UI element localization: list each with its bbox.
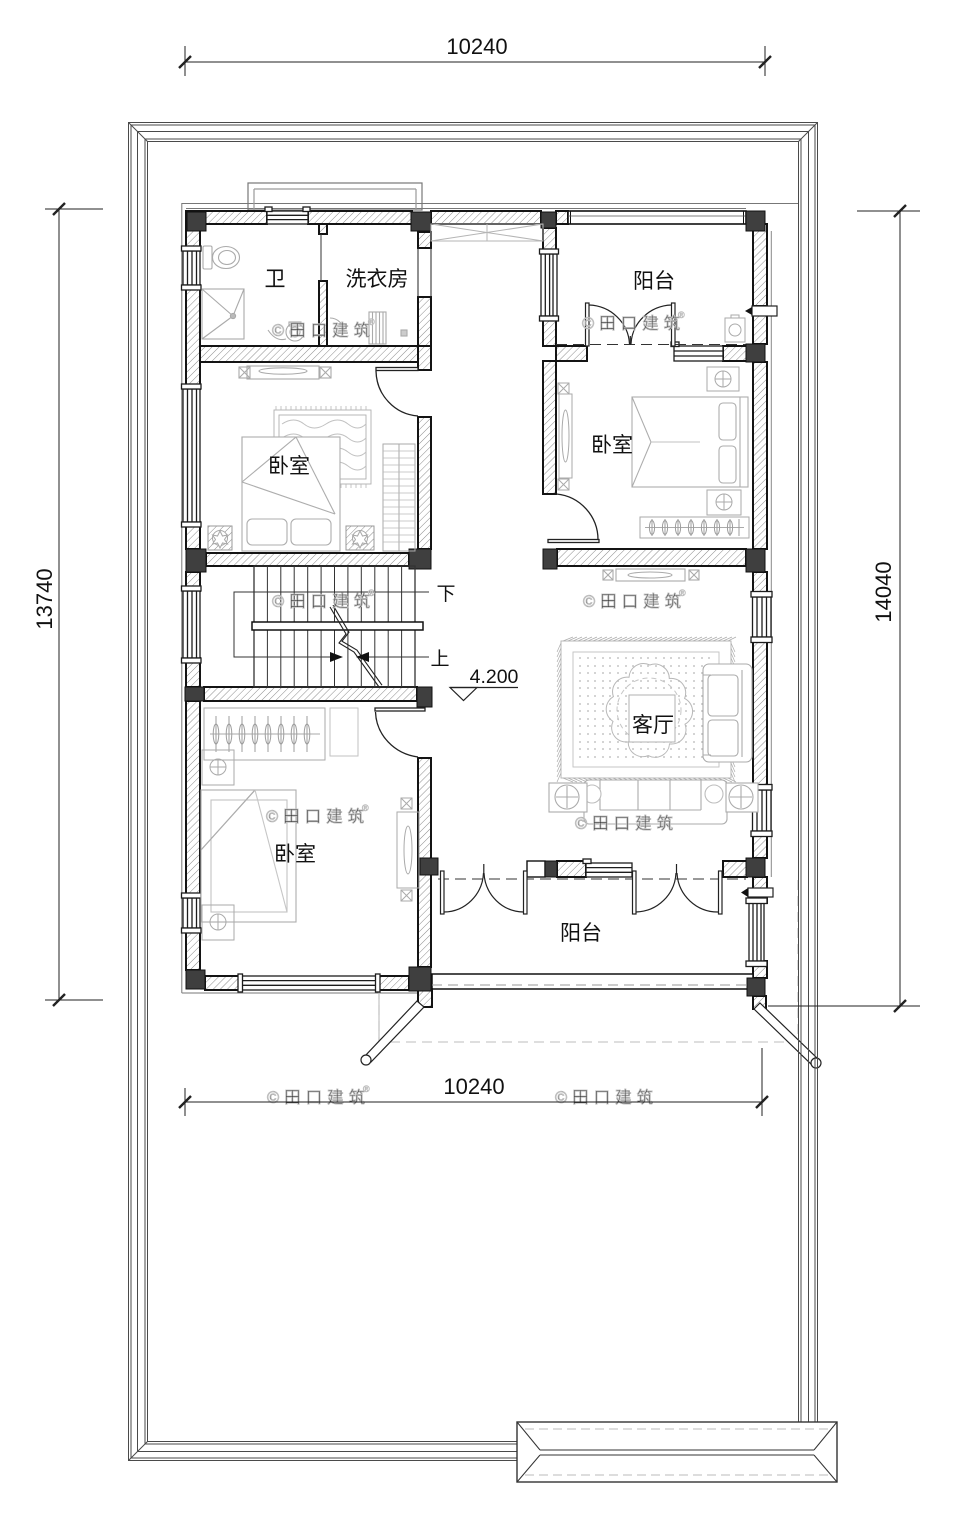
svg-text:10240: 10240 (446, 34, 507, 59)
svg-text:®: ® (362, 803, 374, 813)
svg-text:®: ® (363, 1084, 375, 1094)
svg-text:®: ® (368, 588, 380, 598)
svg-text:©田口建筑: ©田口建筑 (575, 814, 678, 833)
svg-text:©田口建筑: ©田口建筑 (272, 592, 375, 611)
svg-text:卧室: 卧室 (274, 843, 316, 866)
svg-text:洗衣房: 洗衣房 (346, 268, 409, 291)
svg-text:阳台: 阳台 (633, 270, 675, 293)
svg-text:卫: 卫 (265, 268, 286, 291)
svg-text:上: 上 (430, 648, 449, 670)
svg-text:©田口建筑: ©田口建筑 (272, 321, 375, 340)
svg-text:©田口建筑: ©田口建筑 (555, 1088, 658, 1107)
svg-text:下: 下 (436, 584, 455, 605)
svg-text:阳台: 阳台 (560, 922, 602, 945)
svg-text:©田口建筑: ©田口建筑 (266, 807, 369, 826)
svg-text:14040: 14040 (871, 561, 896, 622)
svg-text:©田口建筑: ©田口建筑 (582, 314, 685, 333)
svg-text:®: ® (679, 588, 691, 598)
svg-text:®: ® (678, 310, 690, 320)
svg-text:4.200: 4.200 (470, 666, 519, 688)
svg-text:©田口建筑: ©田口建筑 (267, 1088, 370, 1107)
svg-text:©田口建筑: ©田口建筑 (583, 592, 686, 611)
svg-text:13740: 13740 (32, 568, 57, 629)
svg-text:客厅: 客厅 (632, 714, 674, 737)
svg-text:卧室: 卧室 (591, 434, 633, 457)
svg-text:10240: 10240 (443, 1074, 504, 1099)
svg-text:卧室: 卧室 (268, 455, 310, 478)
svg-text:®: ® (368, 317, 380, 327)
